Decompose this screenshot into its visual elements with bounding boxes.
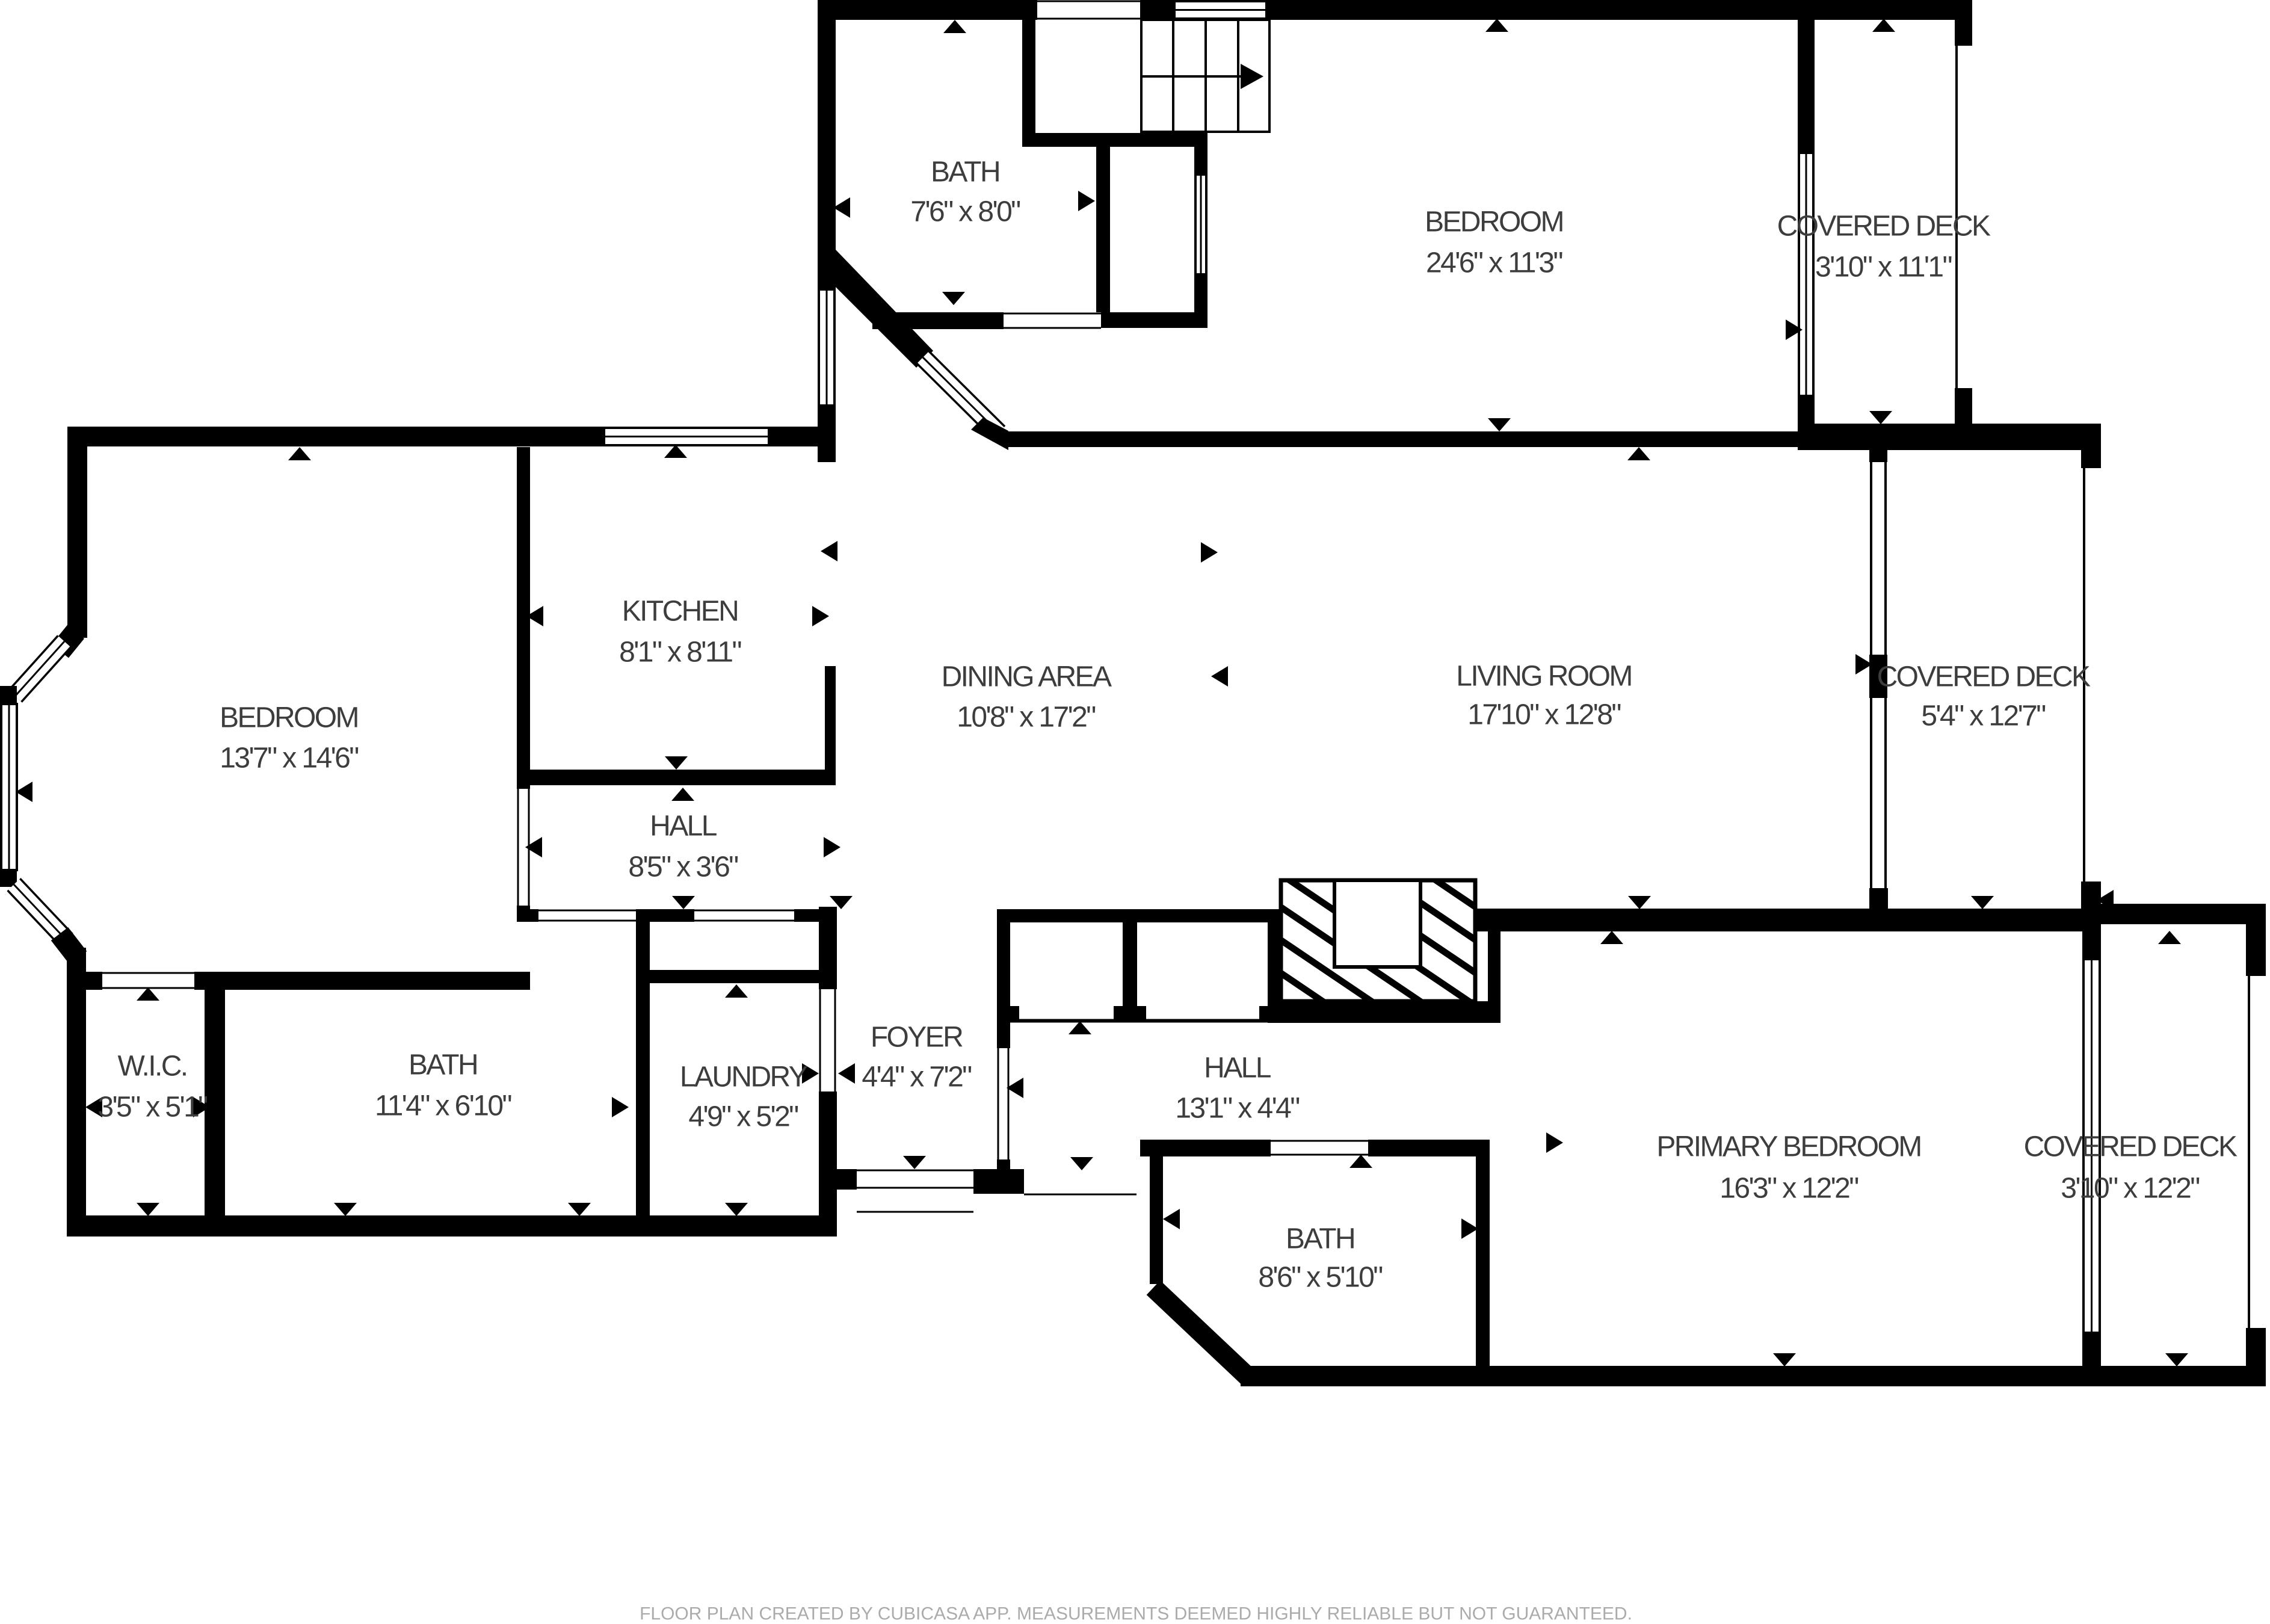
svg-text:7'6" x 8'0": 7'6" x 8'0" xyxy=(910,196,1020,228)
svg-text:3'5" x 5'1": 3'5" x 5'1" xyxy=(97,1091,207,1123)
svg-text:24'6" x 11'3": 24'6" x 11'3" xyxy=(1426,247,1562,279)
svg-text:FOYER: FOYER xyxy=(871,1022,963,1054)
svg-text:11'4" x 6'10": 11'4" x 6'10" xyxy=(375,1090,511,1122)
svg-text:W.I.C.: W.I.C. xyxy=(117,1051,187,1082)
svg-text:PRIMARY BEDROOM: PRIMARY BEDROOM xyxy=(1656,1131,1920,1163)
svg-text:LIVING ROOM: LIVING ROOM xyxy=(1456,661,1631,693)
svg-text:COVERED DECK: COVERED DECK xyxy=(1877,661,2091,693)
svg-text:8'6" x 5'10": 8'6" x 5'10" xyxy=(1258,1262,1382,1294)
svg-text:HALL: HALL xyxy=(1204,1052,1271,1084)
svg-text:3'10" x 11'1": 3'10" x 11'1" xyxy=(1815,252,1951,283)
svg-text:16'3" x 12'2": 16'3" x 12'2" xyxy=(1719,1173,1858,1205)
svg-text:COVERED DECK: COVERED DECK xyxy=(1777,211,1991,242)
svg-text:10'8" x 17'2": 10'8" x 17'2" xyxy=(957,702,1095,733)
svg-text:17'10" x 12'8": 17'10" x 12'8" xyxy=(1467,699,1620,731)
svg-text:FLOOR PLAN CREATED BY CUBICASA: FLOOR PLAN CREATED BY CUBICASA APP. MEAS… xyxy=(640,1604,1632,1624)
svg-text:BATH: BATH xyxy=(931,156,999,188)
svg-text:8'5" x 3'6": 8'5" x 3'6" xyxy=(628,851,738,883)
svg-text:3'10" x 12'2": 3'10" x 12'2" xyxy=(2061,1173,2199,1205)
svg-text:BEDROOM: BEDROOM xyxy=(220,702,358,734)
svg-text:DINING AREA: DINING AREA xyxy=(942,661,1112,693)
svg-text:BEDROOM: BEDROOM xyxy=(1425,206,1563,238)
svg-text:5'4" x 12'7": 5'4" x 12'7" xyxy=(1921,700,2045,732)
svg-text:4'4" x 7'2": 4'4" x 7'2" xyxy=(862,1061,971,1093)
svg-text:KITCHEN: KITCHEN xyxy=(622,596,738,628)
svg-text:4'9" x 5'2": 4'9" x 5'2" xyxy=(688,1101,798,1133)
svg-text:13'1" x 4'4": 13'1" x 4'4" xyxy=(1175,1093,1299,1125)
svg-text:COVERED DECK: COVERED DECK xyxy=(2024,1131,2238,1163)
svg-text:HALL: HALL xyxy=(650,810,717,842)
svg-text:BATH: BATH xyxy=(1286,1223,1354,1255)
svg-text:LAUNDRY: LAUNDRY xyxy=(680,1061,807,1093)
svg-text:8'1" x 8'11": 8'1" x 8'11" xyxy=(619,637,741,668)
svg-text:BATH: BATH xyxy=(409,1049,477,1081)
svg-text:13'7" x 14'6": 13'7" x 14'6" xyxy=(220,743,358,774)
